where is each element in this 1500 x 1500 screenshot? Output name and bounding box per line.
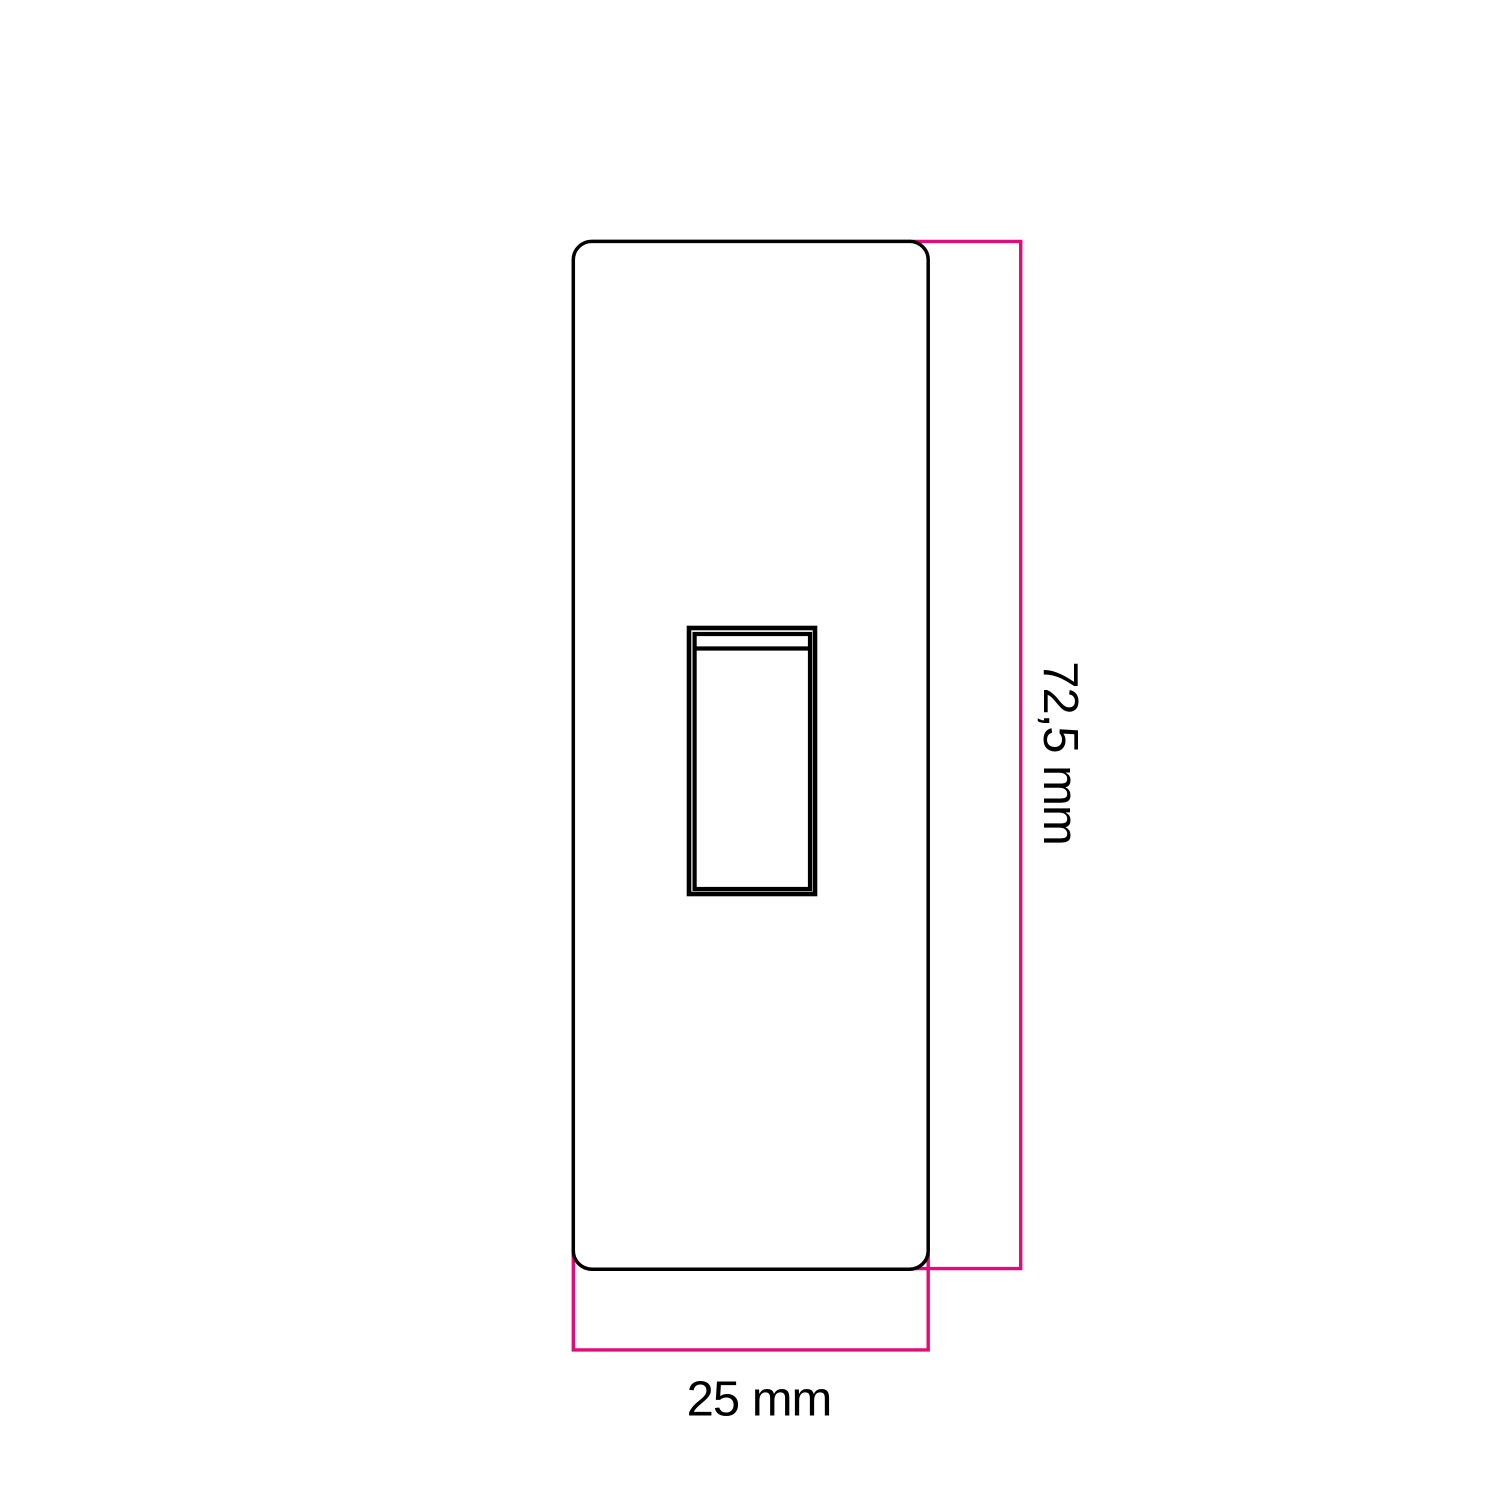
svg-text:25 mm: 25 mm <box>687 1373 832 1427</box>
svg-text:72,5 mm: 72,5 mm <box>1033 661 1087 845</box>
